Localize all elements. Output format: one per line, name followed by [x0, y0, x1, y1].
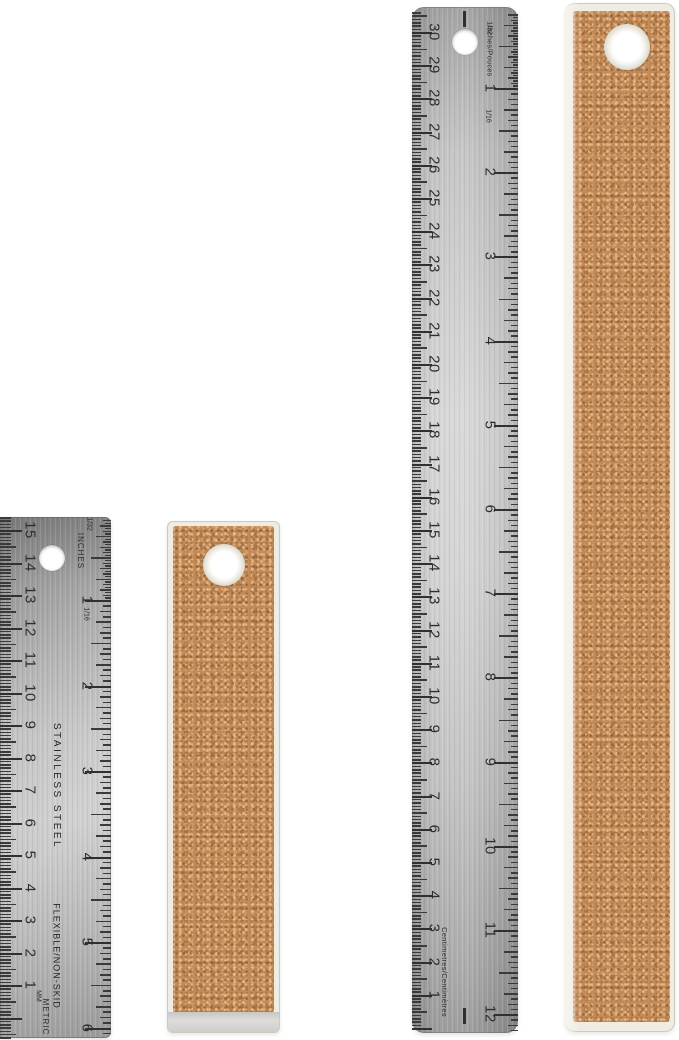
inch-tick: [511, 146, 518, 148]
inch-tick: [511, 220, 518, 222]
inch-tick: [103, 1022, 111, 1024]
cm-tick: [412, 235, 421, 237]
cm-tick: [412, 311, 421, 313]
cm-tick: [412, 998, 421, 1000]
inch-tick: [511, 830, 518, 832]
cm-tick: [0, 540, 11, 542]
cm-tick: [412, 636, 421, 638]
inch-tick: [511, 451, 518, 453]
inch-tick: [103, 766, 111, 768]
inch-number: 4: [483, 336, 498, 345]
cm-tick: [0, 858, 11, 860]
cm-number: 14: [23, 554, 38, 572]
cm-tick: [412, 580, 427, 582]
cm-tick: [412, 211, 421, 213]
cm-tick: [412, 882, 421, 884]
cm-tick: [412, 128, 421, 130]
cm-tick: [0, 728, 11, 730]
cm-tick: [0, 979, 11, 981]
cm-number: 8: [427, 758, 442, 767]
cm-tick: [0, 823, 22, 825]
cm-tick: [412, 500, 421, 502]
cm-number: 10: [427, 687, 442, 705]
cm-tick: [412, 105, 421, 107]
inch-tick: [504, 362, 518, 364]
cm-tick: [412, 676, 421, 678]
inch-tick: [511, 914, 518, 916]
cm-tick: [412, 968, 421, 970]
cm-tick: [0, 566, 11, 568]
inches-unit-label: INCHES: [76, 533, 84, 569]
inch-tick: [103, 734, 111, 736]
inch-tick: [511, 925, 518, 927]
inch-tick: [511, 346, 518, 348]
cm-tick: [412, 643, 421, 645]
cm-tick: [0, 631, 11, 633]
inch-tick: [105, 528, 111, 530]
inch-tick: [511, 335, 518, 337]
cm-tick: [0, 871, 16, 873]
cm-tick: [0, 1034, 16, 1036]
inch-tick: [504, 488, 518, 490]
inch-tick: [100, 846, 111, 848]
inch-tick: [508, 541, 518, 543]
cm-tick: [412, 284, 421, 286]
inch-tick: [96, 664, 111, 666]
inch-tick: [504, 404, 518, 406]
cm-tick: [0, 520, 11, 522]
cm-tick: [0, 650, 11, 652]
cm-tick: [412, 215, 427, 217]
cm-tick: [412, 633, 421, 635]
cm-tick: [412, 450, 421, 452]
cm-tick: [0, 829, 11, 831]
inch-tick: [105, 523, 111, 525]
cm-tick: [412, 374, 421, 376]
cm-tick: [412, 72, 421, 74]
cm-tick: [412, 503, 421, 505]
inch-tick: [511, 177, 518, 179]
cm-tick: [412, 493, 421, 495]
inch-tick: [513, 22, 518, 24]
cm-tick: [0, 943, 11, 945]
cm-tick: [0, 1014, 11, 1016]
hanging-hole: [39, 545, 65, 571]
cm-tick: [412, 905, 421, 907]
cm-tick: [412, 932, 421, 934]
inch-tick: [100, 1017, 111, 1019]
cm-tick: [412, 706, 421, 708]
inch-tick: [91, 557, 111, 559]
inch-tick: [511, 30, 518, 32]
cm-tick: [412, 703, 421, 705]
cm-tick: [412, 191, 421, 193]
cm-tick: [412, 723, 421, 725]
cm-tick: [0, 712, 11, 714]
cm-tick: [0, 806, 16, 808]
inch-tick: [511, 998, 518, 1000]
inch-tick: [508, 77, 518, 79]
inch-tick: [511, 588, 518, 590]
inch-tick: [103, 926, 111, 928]
metric-label: METRIC: [41, 999, 49, 1036]
inch-tick: [508, 793, 518, 795]
cm-tick: [412, 673, 421, 675]
inch-tick: [511, 283, 518, 285]
inch-tick: [511, 398, 518, 400]
cm-tick: [412, 719, 421, 721]
cm-tick: [412, 908, 421, 910]
inch-tick: [103, 605, 111, 607]
inch-tick: [511, 883, 518, 885]
inch-number: 11: [483, 922, 498, 939]
cm-tick: [412, 825, 421, 827]
cm-tick: [0, 543, 11, 545]
inch-tick: [105, 592, 111, 594]
inch-tick: [513, 43, 518, 45]
cm-number: 13: [427, 588, 442, 606]
cm-tick: [412, 606, 421, 608]
inch-tick: [508, 414, 518, 416]
inch-tick: [105, 587, 111, 589]
inch-tick: [511, 114, 518, 116]
inch-tick: [508, 351, 518, 353]
cm-tick: [0, 546, 16, 548]
cm-tick: [0, 982, 11, 984]
cm-tick: [412, 82, 427, 84]
cm-tick: [412, 513, 427, 515]
inch-tick: [511, 935, 518, 937]
inch-tick: [508, 814, 518, 816]
cm-tick: [412, 1021, 421, 1023]
cm-tick: [412, 401, 421, 403]
inch-tick: [96, 750, 111, 752]
cm-tick: [0, 894, 11, 896]
cm-tick: [412, 434, 421, 436]
cm-tick: [412, 301, 421, 303]
cm-tick: [412, 683, 421, 685]
cm-tick: [0, 959, 11, 961]
inch-tick: [499, 467, 518, 469]
cm-tick: [412, 693, 421, 695]
cm-tick: [0, 897, 11, 899]
cm-tick: [412, 88, 421, 90]
cm-tick: [0, 709, 16, 711]
inch-tick: [100, 889, 111, 891]
cm-tick: [412, 537, 421, 539]
cm-tick: [412, 726, 421, 728]
inch-tick: [508, 646, 518, 648]
cm-tick: [0, 576, 11, 578]
inch-tick: [96, 878, 111, 880]
inch-number: 4: [80, 852, 95, 861]
inch-tick: [513, 85, 518, 87]
inch-tick: [100, 568, 111, 570]
cm-tick: [0, 891, 11, 893]
cm-number: 4: [427, 891, 442, 900]
cm-tick: [412, 324, 421, 326]
cm-tick: [0, 572, 11, 574]
inch-tick: [511, 893, 518, 895]
cm-tick: [412, 384, 421, 386]
inch-tick: [511, 93, 518, 95]
cm-tick: [412, 477, 421, 479]
cm-tick: [412, 958, 421, 960]
inch-tick: [103, 563, 111, 565]
cm-tick: [412, 327, 421, 329]
cm-number: 6: [427, 824, 442, 833]
inch-tick: [511, 714, 518, 716]
inch-tick: [508, 14, 518, 16]
inch-tick: [511, 272, 518, 274]
cm-tick: [412, 454, 421, 456]
inch-tick: [508, 604, 518, 606]
cm-tick: [0, 836, 11, 838]
cm-tick: [412, 922, 421, 924]
inch-tick: [504, 867, 518, 869]
inch-tick: [508, 35, 518, 37]
cm-tick: [0, 810, 11, 812]
inch-tick: [511, 746, 518, 748]
cm-tick: [412, 746, 427, 748]
inch-tick: [499, 214, 518, 216]
inch-tick: [511, 462, 518, 464]
inch-tick: [511, 377, 518, 379]
cm-tick: [412, 1005, 421, 1007]
cm-number: 2: [427, 957, 442, 966]
inch-tick: [513, 80, 518, 82]
cork-surface: [573, 11, 670, 1022]
inches-pouces-label: Inches/Pouces: [486, 25, 493, 76]
cm-tick: [0, 524, 11, 526]
inch-tick: [103, 616, 111, 618]
cm-tick: [0, 803, 11, 805]
cm-tick: [412, 560, 421, 562]
cm-tick: [412, 308, 421, 310]
cm-tick: [412, 208, 421, 210]
inch-tick: [511, 230, 518, 232]
inch-tick: [100, 547, 111, 549]
cm-tick: [412, 268, 421, 270]
cm-tick: [412, 899, 421, 901]
cork-surface: [173, 526, 274, 1013]
cm-tick: [0, 832, 11, 834]
cm-tick: [0, 790, 22, 792]
inch-tick: [504, 909, 518, 911]
inch-tick: [511, 504, 518, 506]
inch-tick: [511, 725, 518, 727]
cm-tick: [412, 321, 421, 323]
cm-number: 2: [23, 948, 38, 957]
cm-tick: [0, 878, 11, 880]
inch-tick: [499, 888, 518, 890]
inch-tick: [103, 947, 111, 949]
cm-tick: [412, 749, 421, 751]
inch-tick: [511, 262, 518, 264]
inch-tick: [103, 787, 111, 789]
inch-tick: [103, 691, 111, 693]
inch-tick: [504, 783, 518, 785]
inch-tick: [511, 493, 518, 495]
inch-tick: [508, 772, 518, 774]
cm-tick: [0, 741, 16, 743]
cm-tick: [0, 907, 11, 909]
cm-tick: [412, 839, 421, 841]
inch-tick: [511, 641, 518, 643]
inch-tick: [508, 477, 518, 479]
inch-tick: [100, 760, 111, 762]
cm-tick: [412, 205, 421, 207]
inch-tick: [96, 579, 111, 581]
cm-tick: [412, 178, 421, 180]
cm-tick: [0, 852, 11, 854]
inch-tick: [504, 614, 518, 616]
cm-tick: [412, 244, 421, 246]
inch-tick: [100, 739, 111, 741]
cm-number: 1: [427, 990, 442, 999]
inch-tick: [91, 728, 111, 730]
cm-tick: [0, 550, 11, 552]
cm-tick: [412, 819, 421, 821]
cm-tick: [412, 404, 421, 406]
inch-tick: [91, 899, 111, 901]
steel-edge-highlight: [565, 3, 579, 1032]
cm-tick: [0, 683, 11, 685]
inch-tick: [504, 67, 518, 69]
inch-tick: [508, 393, 518, 395]
inch-tick: [100, 653, 111, 655]
cm-tick: [412, 835, 421, 837]
cm-tick: [412, 148, 427, 150]
cm-tick: [412, 573, 421, 575]
cm-tick: [0, 624, 11, 626]
cm-tick: [412, 367, 421, 369]
inch-tick: [508, 246, 518, 248]
inch-tick: [508, 372, 518, 374]
cm-tick: [412, 902, 421, 904]
inch-tick: [513, 59, 518, 61]
fraction-1-16-label: 1/16: [83, 607, 90, 621]
cm-tick: [412, 802, 421, 804]
inch-tick: [508, 225, 518, 227]
long-cork-strip: [565, 3, 675, 1032]
cm-tick: [412, 424, 421, 426]
inch-tick: [103, 979, 111, 981]
inch-tick: [103, 894, 111, 896]
cm-tick: [412, 241, 421, 243]
inch-number: 8: [483, 673, 498, 682]
inch-number: 3: [80, 767, 95, 776]
inch-tick: [511, 862, 518, 864]
cm-tick: [412, 769, 421, 771]
cm-tick: [412, 786, 421, 788]
cm-tick: [412, 716, 421, 718]
cm-tick: [412, 550, 421, 552]
cm-tick: [412, 25, 421, 27]
cm-tick: [412, 171, 421, 173]
cm-tick: [0, 696, 11, 698]
inch-tick: [103, 584, 111, 586]
cm-tick: [0, 751, 11, 753]
cm-tick: [0, 592, 11, 594]
cm-tick: [412, 679, 427, 681]
inch-tick: [511, 598, 518, 600]
inch-number: 2: [80, 681, 95, 690]
inch-tick: [508, 667, 518, 669]
cm-tick: [0, 800, 11, 802]
cm-tick: [412, 1015, 421, 1017]
cm-tick: [0, 706, 11, 708]
cm-tick: [412, 221, 421, 223]
inch-tick: [508, 962, 518, 964]
cm-tick: [412, 361, 421, 363]
cm-tick: [412, 942, 421, 944]
cm-tick: [412, 869, 421, 871]
cm-tick: [0, 865, 11, 867]
cm-tick: [412, 669, 421, 671]
cm-tick: [412, 420, 421, 422]
end-mark: [463, 11, 466, 27]
inch-tick: [100, 931, 111, 933]
cm-tick: [412, 447, 427, 449]
cm-tick: [412, 12, 421, 14]
cm-tick: [412, 92, 421, 94]
cm-tick: [0, 914, 11, 916]
inch-tick: [511, 567, 518, 569]
inch-number: 3: [483, 252, 498, 261]
inch-number: 7: [483, 589, 498, 598]
cm-tick: [0, 839, 16, 841]
inch-tick: [103, 637, 111, 639]
cm-number: 12: [23, 619, 38, 637]
cm-tick: [412, 115, 427, 117]
cm-tick: [412, 713, 427, 715]
inch-tick: [511, 367, 518, 369]
cm-tick: [0, 1005, 11, 1007]
cm-tick: [0, 634, 11, 636]
inch-tick: [100, 611, 111, 613]
cm-tick: [412, 188, 421, 190]
cm-tick: [412, 444, 421, 446]
hanging-hole: [452, 29, 478, 55]
cm-tick: [412, 185, 421, 187]
inch-tick: [103, 1001, 111, 1003]
cm-tick: [412, 646, 427, 648]
inch-tick: [96, 963, 111, 965]
cm-tick: [412, 586, 421, 588]
cm-tick: [0, 595, 22, 597]
inch-tick: [508, 898, 518, 900]
inch-tick: [103, 819, 111, 821]
inch-tick: [511, 819, 518, 821]
cm-tick: [412, 42, 421, 44]
cm-tick: [0, 1018, 22, 1020]
cm-tick: [412, 948, 421, 950]
inch-tick: [499, 551, 518, 553]
cm-number: 5: [427, 858, 442, 867]
cm-tick: [412, 978, 427, 980]
cm-tick: [0, 849, 11, 851]
inch-tick: [504, 235, 518, 237]
cm-tick: [0, 793, 11, 795]
cm-tick: [0, 862, 11, 864]
inch-number: 5: [483, 420, 498, 429]
cm-tick: [412, 640, 421, 642]
inch-tick: [504, 109, 518, 111]
cm-number: 11: [427, 655, 442, 672]
cm-tick: [0, 774, 16, 776]
inch-tick: [105, 565, 111, 567]
